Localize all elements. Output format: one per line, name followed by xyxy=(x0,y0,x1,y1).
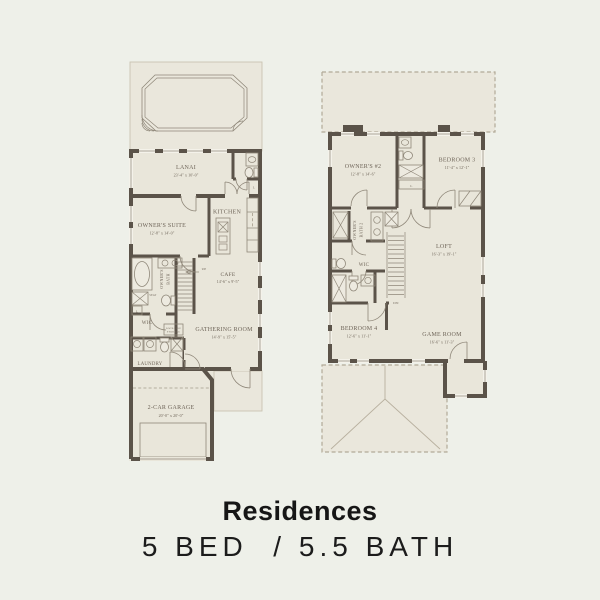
bedroom3-dims: 11'-4" x 12'-1" xyxy=(445,165,470,170)
entry-roof-structure xyxy=(443,361,487,398)
bedroom4-label: BEDROOM 4 xyxy=(341,326,378,332)
title-block: Residences 5 BED / 5.5 BATH xyxy=(0,497,600,563)
plan-name: Residences xyxy=(0,497,600,525)
owners-bath2-label-1: OWNER'S xyxy=(352,220,357,239)
gathering-room-dims: 14'-9" x 15'-5" xyxy=(212,335,237,340)
roof-outline-bottom xyxy=(322,365,447,452)
lockable-storage-line2: STORAGE xyxy=(167,331,180,334)
loft-label: LOFT xyxy=(436,244,452,250)
wall-stub-right xyxy=(438,125,450,132)
wall-stub-left xyxy=(343,125,363,132)
toilet xyxy=(399,151,413,160)
linen-label-f1: L xyxy=(136,310,138,314)
gathering-room-label: GATHERING ROOM xyxy=(195,327,253,333)
seat-label: SEAT xyxy=(149,294,156,297)
toilet xyxy=(245,168,258,178)
garage-label: 2-CAR GARAGE xyxy=(148,405,195,411)
cafe-dims: 14'-6" x 9'-5" xyxy=(217,279,240,284)
bedroom3-label: BEDROOM 3 xyxy=(439,158,476,164)
owners-bath2-label-2: BATH 2 xyxy=(359,223,364,238)
loft-dims: 16'-3" x 19'-1" xyxy=(432,252,457,257)
game-room-label: GAME ROOM xyxy=(422,332,462,338)
owners-bath-label-1: OWNER'S xyxy=(159,269,164,288)
tub xyxy=(132,258,152,290)
stairs-up-label: UP xyxy=(202,267,207,271)
wic-label-f2: WIC xyxy=(359,263,370,268)
owners2-label: OWNER'S #2 xyxy=(345,164,381,170)
laundry-label: LAUNDRY xyxy=(138,362,163,367)
bedroom4-dims: 12'-6" x 11'-1" xyxy=(347,334,372,339)
lanai-dims: 23'-4" x 10'-0" xyxy=(174,173,199,178)
owners2-dims: 12'-8" x 14'-6" xyxy=(351,172,376,177)
game-room-dims: 16'-6" x 11'-3" xyxy=(430,340,455,345)
kitchen-label: KITCHEN xyxy=(213,210,241,216)
entry-porch xyxy=(214,371,262,411)
stairs-dn-label: DN xyxy=(393,301,399,305)
toilet xyxy=(162,295,176,306)
toilet xyxy=(349,276,358,291)
owners-suite-dims: 12'-8" x 14'-0" xyxy=(150,231,175,236)
powder-toilet xyxy=(160,338,169,352)
garage-dims: 20'-0" x 20'-0" xyxy=(159,413,184,418)
lanai-label: LANAI xyxy=(176,165,196,171)
floorplan-page: LANAI 23'-4" x 10'-0" OWNER'S SUITE 12'-… xyxy=(0,0,600,600)
wic-label-f1: WIC xyxy=(142,321,153,326)
owners-suite-label: OWNER'S SUITE xyxy=(138,223,186,229)
toilet xyxy=(332,259,346,269)
linen-label-f2: L xyxy=(410,184,412,188)
pool-deck xyxy=(130,62,262,151)
owners-bath-label-2: BATH xyxy=(166,273,171,284)
first-floor-plan: LANAI 23'-4" x 10'-0" OWNER'S SUITE 12'-… xyxy=(129,62,262,461)
second-floor-plan: OWNER'S #2 12'-8" x 14'-6" BEDROOM 3 11'… xyxy=(322,72,495,452)
plan-specs: 5 BED / 5.5 BATH xyxy=(0,531,600,563)
roof-outline-top xyxy=(322,72,495,132)
cafe-label: CAFE xyxy=(220,272,235,278)
linen-label-lanai: L xyxy=(253,186,255,190)
